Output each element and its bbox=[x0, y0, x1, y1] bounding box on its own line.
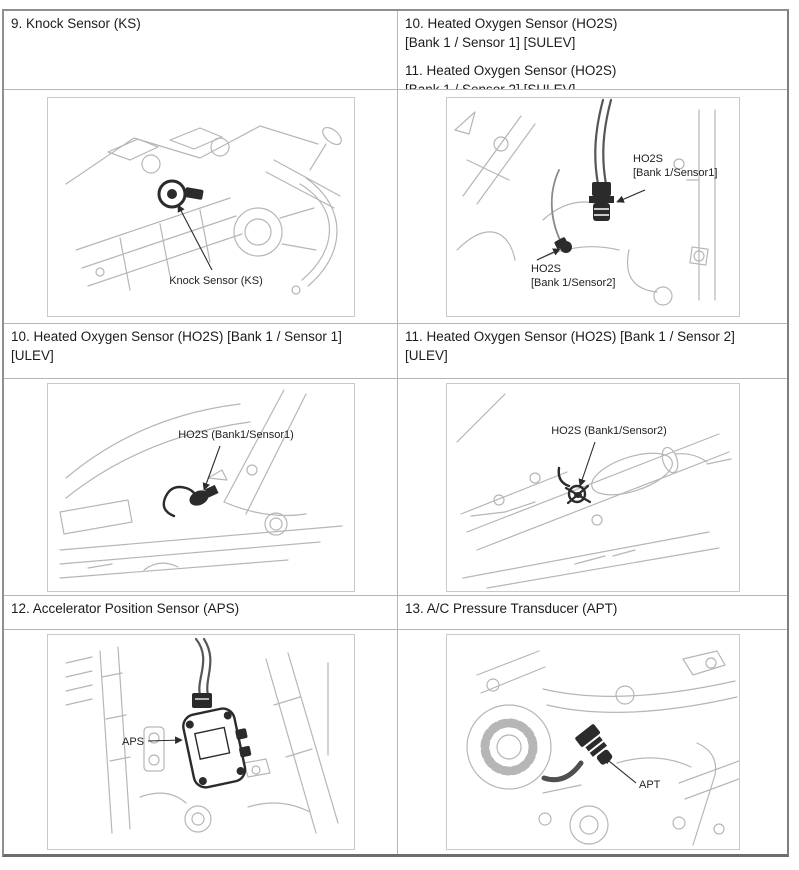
ho2s-ulev-s1-line1: 10. Heated Oxygen Sensor (HO2S) [Bank 1 … bbox=[11, 328, 390, 347]
ho2s-sulev-item10-line2: [Bank 1 / Sensor 1] [SULEV] bbox=[405, 34, 780, 53]
ho2s-ulev-s1-figure-label: HO2S (Bank1/Sensor1) bbox=[178, 429, 294, 441]
figure-cell-aps: APS bbox=[4, 630, 398, 854]
figure-cell-ho2s-ulev-s2: HO2S (Bank1/Sensor2) bbox=[398, 379, 787, 596]
engine-line-art bbox=[66, 124, 344, 294]
figure-cell-ho2s-ulev-s1: HO2S (Bank1/Sensor1) bbox=[4, 379, 398, 596]
aps-figure-label: APS bbox=[121, 736, 143, 748]
header-cell-knock-sensor: 9. Knock Sensor (KS) bbox=[4, 11, 398, 90]
aps-header-text: 12. Accelerator Position Sensor (APS) bbox=[11, 600, 390, 619]
ho2s-ulev-s1-figure-box: HO2S (Bank1/Sensor1) bbox=[47, 383, 355, 592]
header-cell-ho2s-ulev-s2: 11. Heated Oxygen Sensor (HO2S) [Bank 1 … bbox=[398, 324, 787, 379]
figure-cell-ho2s-sulev: HO2S [Bank 1/Sensor1] HO2S [Bank 1/Senso… bbox=[398, 90, 787, 324]
header-cell-ho2s-sulev: 10. Heated Oxygen Sensor (HO2S) [Bank 1 … bbox=[398, 11, 787, 90]
ho2s-sulev-item11: 11. Heated Oxygen Sensor (HO2S) [Bank 1 … bbox=[405, 62, 780, 90]
ho2s-sulev-item10: 10. Heated Oxygen Sensor (HO2S) [Bank 1 … bbox=[405, 15, 780, 53]
figure-cell-apt: APT bbox=[398, 630, 787, 854]
ho2s-sulev-illustration: HO2S [Bank 1/Sensor1] HO2S [Bank 1/Senso… bbox=[447, 98, 739, 316]
leader-arrow bbox=[178, 205, 212, 270]
header-cell-aps: 12. Accelerator Position Sensor (APS) bbox=[4, 596, 398, 630]
apt-header-text: 13. A/C Pressure Transducer (APT) bbox=[405, 600, 780, 619]
leader-arrow bbox=[204, 446, 220, 490]
leader-arrow bbox=[148, 740, 182, 741]
ho2s-ulev-s1-line2: [ULEV] bbox=[11, 347, 390, 366]
underbody-line-art bbox=[60, 390, 342, 578]
ho2s-sulev-item11-line2: [Bank 1 / Sensor 2] [SULEV] bbox=[405, 81, 780, 90]
leader-arrow-sensor1 bbox=[617, 190, 645, 202]
ho2s-ulev-s2-line1: 11. Heated Oxygen Sensor (HO2S) [Bank 1 … bbox=[405, 328, 780, 347]
ho2s-ulev-s2-line2: [ULEV] bbox=[405, 347, 780, 366]
aps-part-drawing bbox=[181, 639, 256, 790]
ho2s-ulev-s2-figure-box: HO2S (Bank1/Sensor2) bbox=[446, 383, 740, 592]
ho2s-sensor1-label-line2: [Bank 1/Sensor1] bbox=[633, 167, 717, 179]
knock-sensor-figure-box: Knock Sensor (KS) bbox=[47, 97, 355, 317]
knock-sensor-figure-label: Knock Sensor (KS) bbox=[169, 275, 263, 287]
ho2s-sensor-part-drawing bbox=[163, 484, 218, 515]
ho2s-ulev-s1-illustration: HO2S (Bank1/Sensor1) bbox=[48, 384, 354, 591]
exhaust-line-art bbox=[457, 394, 731, 588]
figure-cell-knock-sensor: Knock Sensor (KS) bbox=[4, 90, 398, 324]
ho2s-sensor2-label-line1: HO2S bbox=[531, 263, 561, 275]
aps-illustration: APS bbox=[48, 635, 354, 849]
ho2s-ulev-s2-figure-label: HO2S (Bank1/Sensor2) bbox=[551, 425, 667, 437]
ho2s-sensor2-label-line2: [Bank 1/Sensor2] bbox=[531, 277, 615, 289]
apt-figure-box: APT bbox=[446, 634, 740, 850]
ho2s-sulev-item11-line1: 11. Heated Oxygen Sensor (HO2S) bbox=[405, 62, 780, 81]
ho2s-sensor1-part-drawing bbox=[589, 182, 614, 221]
knock-sensor-illustration: Knock Sensor (KS) bbox=[48, 98, 354, 316]
engine-bay-line-art bbox=[455, 110, 715, 305]
knock-sensor-header-text: 9. Knock Sensor (KS) bbox=[11, 15, 390, 34]
ho2s-sulev-item10-line1: 10. Heated Oxygen Sensor (HO2S) bbox=[405, 15, 780, 34]
header-cell-apt: 13. A/C Pressure Transducer (APT) bbox=[398, 596, 787, 630]
leader-arrow bbox=[604, 757, 636, 783]
ho2s-sensor1-label-line1: HO2S bbox=[633, 153, 663, 165]
apt-part-drawing bbox=[544, 723, 617, 779]
apt-illustration: APT bbox=[447, 635, 739, 849]
aps-figure-box: APS bbox=[47, 634, 355, 850]
sensor-location-table: 9. Knock Sensor (KS) 10. Heated Oxygen S… bbox=[2, 9, 789, 857]
header-cell-ho2s-ulev-s1: 10. Heated Oxygen Sensor (HO2S) [Bank 1 … bbox=[4, 324, 398, 379]
sensor-cables bbox=[551, 100, 610, 246]
ho2s-ulev-s2-illustration: HO2S (Bank1/Sensor2) bbox=[447, 384, 739, 591]
leader-arrow-sensor2 bbox=[537, 249, 560, 260]
knock-sensor-part-drawing bbox=[159, 181, 204, 207]
apt-figure-label: APT bbox=[639, 779, 661, 791]
ho2s-sulev-figure-box: HO2S [Bank 1/Sensor1] HO2S [Bank 1/Senso… bbox=[446, 97, 740, 317]
